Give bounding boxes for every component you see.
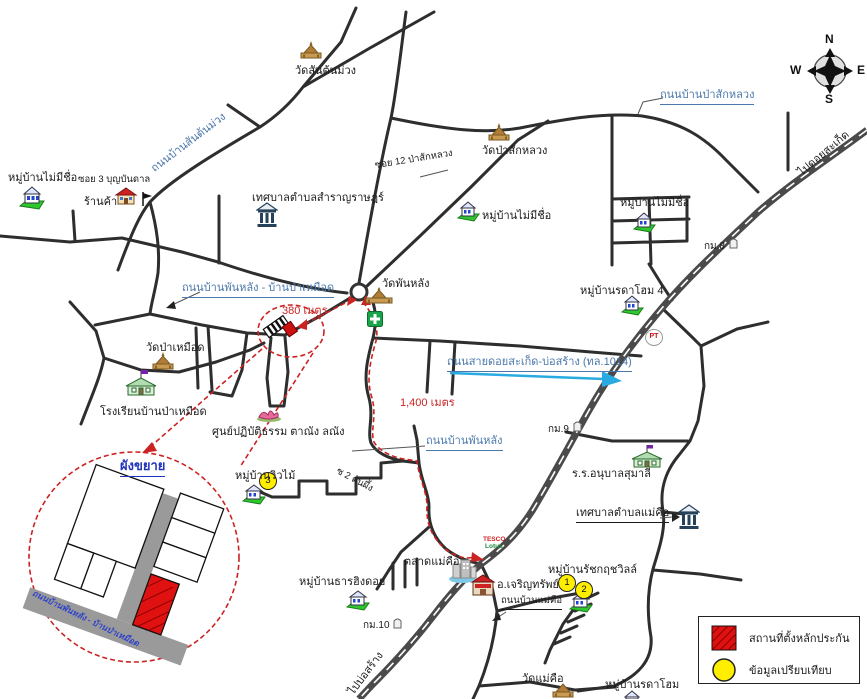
school-icon (124, 368, 158, 400)
compass-south-label: S (825, 92, 833, 106)
km8-label: กม.8 (704, 239, 725, 254)
place-label-wat-pasakluang: วัดป่าสักหลวง (482, 141, 547, 159)
compass-icon (807, 48, 853, 94)
place-label-wat-phanlang: วัดพันหลัง (382, 274, 429, 292)
place-label-ratchakrit: หมู่บ้านรัชกฤชวิลล์ (548, 560, 637, 578)
soi3-label: ซอย 3 บุญบันดาล (78, 172, 150, 187)
road-label-phanlang-pamuead: ถนนบ้านพันหลัง - บ้านป่าเหมือด (182, 278, 334, 298)
map-canvas: PT 3 1 2 หมู่บ้านไม่มีชื่อ ซอย 3 บุญบันด… (0, 0, 867, 699)
village-icon (632, 210, 658, 234)
compass-west-label: W (790, 63, 801, 77)
place-label-school-pamuead: โรงเรียนบ้านป่าเหมือด (100, 402, 207, 420)
place-label-charoensap: อ.เจริญทรัพย์ (497, 575, 559, 593)
road-label-pasakluang: ถนนบ้านป่าสักหลวง (660, 85, 754, 105)
inset-title: ผังขยาย (120, 455, 165, 477)
hwy1014-arrow (450, 371, 622, 387)
place-label-village-no-name-3: หมู่บ้านไม่มีชื่อ (620, 193, 689, 211)
km-stone-icon (573, 420, 582, 432)
place-label-village-no-name-2: หมู่บ้านไม่มีชื่อ (482, 206, 551, 224)
compass-east-label: E (857, 63, 865, 77)
road-network (0, 8, 788, 699)
distance-1400m-label: 1,400 เมตร (400, 393, 455, 411)
village-icon (456, 199, 482, 223)
distance-380m-label: 380 เมตร (282, 301, 327, 319)
legend-row-comparison: ข้อมูลเปรียบเทียบ (711, 657, 832, 683)
place-label-wat-santonmuang: วัดสันต้นม่วง (295, 61, 356, 79)
village-icon (18, 184, 48, 210)
comparison-legend-icon (711, 657, 737, 683)
legend-site-label: สถานที่ตั้งหลักประกัน (749, 629, 849, 647)
road-label-maekhue: ถนนบ้านแม่คือ (501, 593, 562, 610)
lotus-brand-label: Lotus (485, 543, 503, 550)
place-label-shop: ร้านค้า (84, 192, 117, 210)
place-label-meditation-center: ศูนย์ปฏิบัติธรรม ตาณัง ลณัง (212, 422, 345, 440)
shop-icon (114, 186, 138, 206)
place-label-radahome4: หมู่บ้านรดาโฮม 4 (580, 281, 663, 299)
place-label-tessaban-samranrat: เทศบาลตำบลสำราญราษฎร์ (252, 188, 384, 206)
temple-icon (486, 122, 512, 142)
legend-row-site: สถานที่ตั้งหลักประกัน (711, 625, 849, 651)
roads-northwest (0, 8, 434, 314)
road-label-doisaket-bosang: ถนนสายดอยสะเก็ด-บ่อสร้าง (ทล.1014) (447, 352, 632, 372)
km10-label: กม.10 (363, 618, 390, 633)
legend-comparison-label: ข้อมูลเปรียบเทียบ (749, 661, 832, 679)
place-label-wat-maekhue: วัดแม่คือ (522, 669, 564, 687)
temple-icon (298, 40, 324, 60)
road-label-phanlang: ถนนบ้านพันหลัง (426, 431, 503, 451)
compass-north-label: N (825, 32, 834, 46)
site-legend-icon (711, 625, 737, 651)
lotus-icon (255, 405, 283, 423)
comparison-badge-2: 2 (575, 581, 593, 599)
place-label-village-no-name-1: หมู่บ้านไม่มีชื่อ (8, 168, 77, 186)
km9-label: กม.9 (548, 422, 569, 437)
pt-station-icon: PT (645, 329, 663, 346)
km-stone-icon (393, 617, 402, 629)
place-label-tessaban-maekhue: เทศบาลตำบลแม่คือ (576, 503, 669, 523)
place-label-viewmai: หมู่บ้านวิวไม้ (235, 466, 295, 484)
municipality-icon (678, 504, 700, 530)
village-icon (345, 588, 373, 612)
health-cross-icon (367, 311, 383, 327)
place-label-tharnhingdoi: หมู่บ้านธารฮิงดอย (299, 572, 385, 590)
legend-box: สถานที่ตั้งหลักประกัน ข้อมูลเปรียบเทียบ (698, 616, 860, 684)
place-label-market-maekhue: ตลาดแม่คือ (404, 552, 460, 570)
flag-icon (140, 191, 154, 207)
km-stone-icon (729, 237, 738, 249)
place-label-school-sumalee: ร.ร.อนุบาลสุมาลี (572, 464, 651, 482)
place-label-radahome: หมู่บ้านรดาโฮม (605, 675, 679, 693)
place-label-wat-pamuead: วัดป่าเหมือด (146, 338, 205, 356)
tesco-brand-label: TESCO (483, 536, 505, 543)
